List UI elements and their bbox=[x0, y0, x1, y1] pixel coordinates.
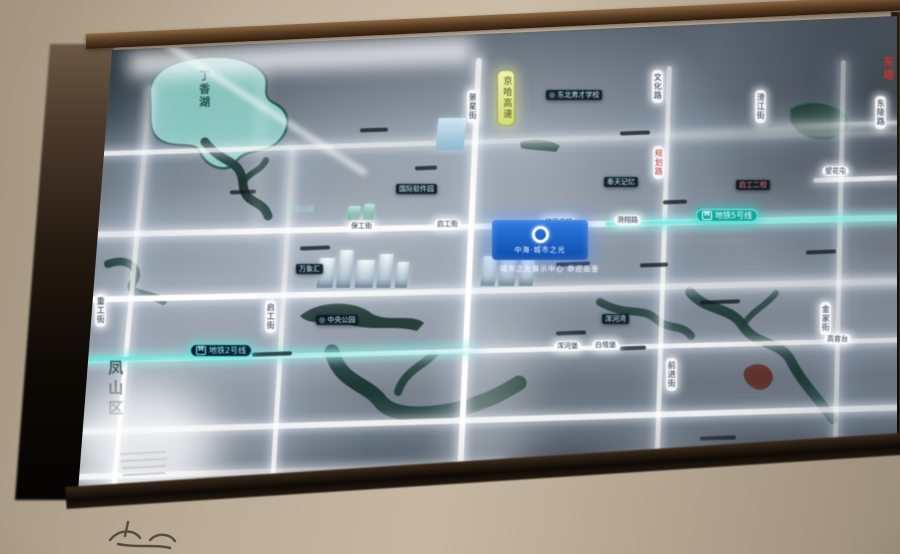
project-logo-icon bbox=[532, 226, 549, 243]
building bbox=[435, 118, 466, 150]
planned-road-pill: 规划路 bbox=[653, 146, 664, 179]
road-name-pill: 前进街 bbox=[666, 358, 677, 391]
station-pill: 启工街 bbox=[434, 219, 461, 229]
station-pill: 浑河堡 bbox=[554, 341, 581, 351]
red-grove bbox=[744, 364, 773, 390]
building bbox=[363, 204, 375, 220]
river bbox=[243, 160, 266, 182]
poi-plate: 国际软件园 bbox=[396, 184, 437, 194]
station-pill: 望花屯 bbox=[822, 166, 849, 176]
river bbox=[690, 292, 833, 419]
road-name-pill: 文化路 bbox=[652, 70, 663, 103]
road-name-pill: 重工街 bbox=[95, 294, 106, 327]
road-name-pill: 金家街 bbox=[820, 302, 831, 335]
lake-label: 丁香湖 bbox=[197, 70, 210, 109]
station-pill: 高官台 bbox=[824, 334, 851, 344]
metro-icon: M bbox=[196, 346, 206, 355]
district-label: 凤山区 bbox=[106, 360, 123, 420]
metro-line-badge: M地铁5号线 bbox=[696, 209, 758, 222]
project-badge: 中海·城市之光 bbox=[492, 220, 588, 260]
metro-line-name: 地铁5号线 bbox=[715, 211, 752, 220]
metro-line-name: 地铁2号线 bbox=[209, 346, 246, 355]
station-pill: 保工街 bbox=[348, 221, 375, 231]
photo-of-map-board: 景星街文化路滂江街东陵路规划路启工街重工街前进街金家街京哈高速保工街启工街铁西广… bbox=[0, 0, 900, 554]
poi-plate: 万象汇 bbox=[296, 264, 323, 274]
river bbox=[398, 354, 434, 392]
station-pill: 滑翔路 bbox=[614, 215, 641, 225]
road-name-pill: 启工街 bbox=[265, 300, 276, 333]
highway-pill: 京哈高速 bbox=[497, 70, 515, 126]
poi-plate: 启工二校 bbox=[736, 180, 770, 190]
river bbox=[743, 293, 776, 326]
poi-plate: 浑河湾 bbox=[602, 314, 629, 324]
unreadable-label bbox=[415, 166, 437, 171]
building bbox=[355, 260, 376, 288]
metro-line-badge: M地铁2号线 bbox=[190, 344, 252, 357]
building bbox=[347, 206, 360, 220]
road-name-pill: 景星街 bbox=[467, 90, 478, 123]
poi-plate: ◎ 中央公园 bbox=[316, 315, 358, 325]
metro-icon: M bbox=[702, 211, 712, 220]
road-name-pill: 东陵路 bbox=[875, 96, 886, 129]
road-name-pill: 滂江街 bbox=[755, 90, 766, 123]
unreadable-label bbox=[663, 200, 687, 205]
landmark-label: 东塔 bbox=[881, 56, 894, 82]
station-pill: 白塔堡 bbox=[592, 340, 619, 350]
project-name: 中海·城市之光 bbox=[514, 245, 565, 255]
park-label: 劳动公园 bbox=[286, 205, 314, 213]
project-tagline: 城市之光展示中心 恭迎品鉴 bbox=[500, 264, 599, 274]
poi-plate: ◎ 东北育才学校 bbox=[546, 90, 602, 100]
poi-plate: 奉天记忆 bbox=[604, 177, 638, 187]
